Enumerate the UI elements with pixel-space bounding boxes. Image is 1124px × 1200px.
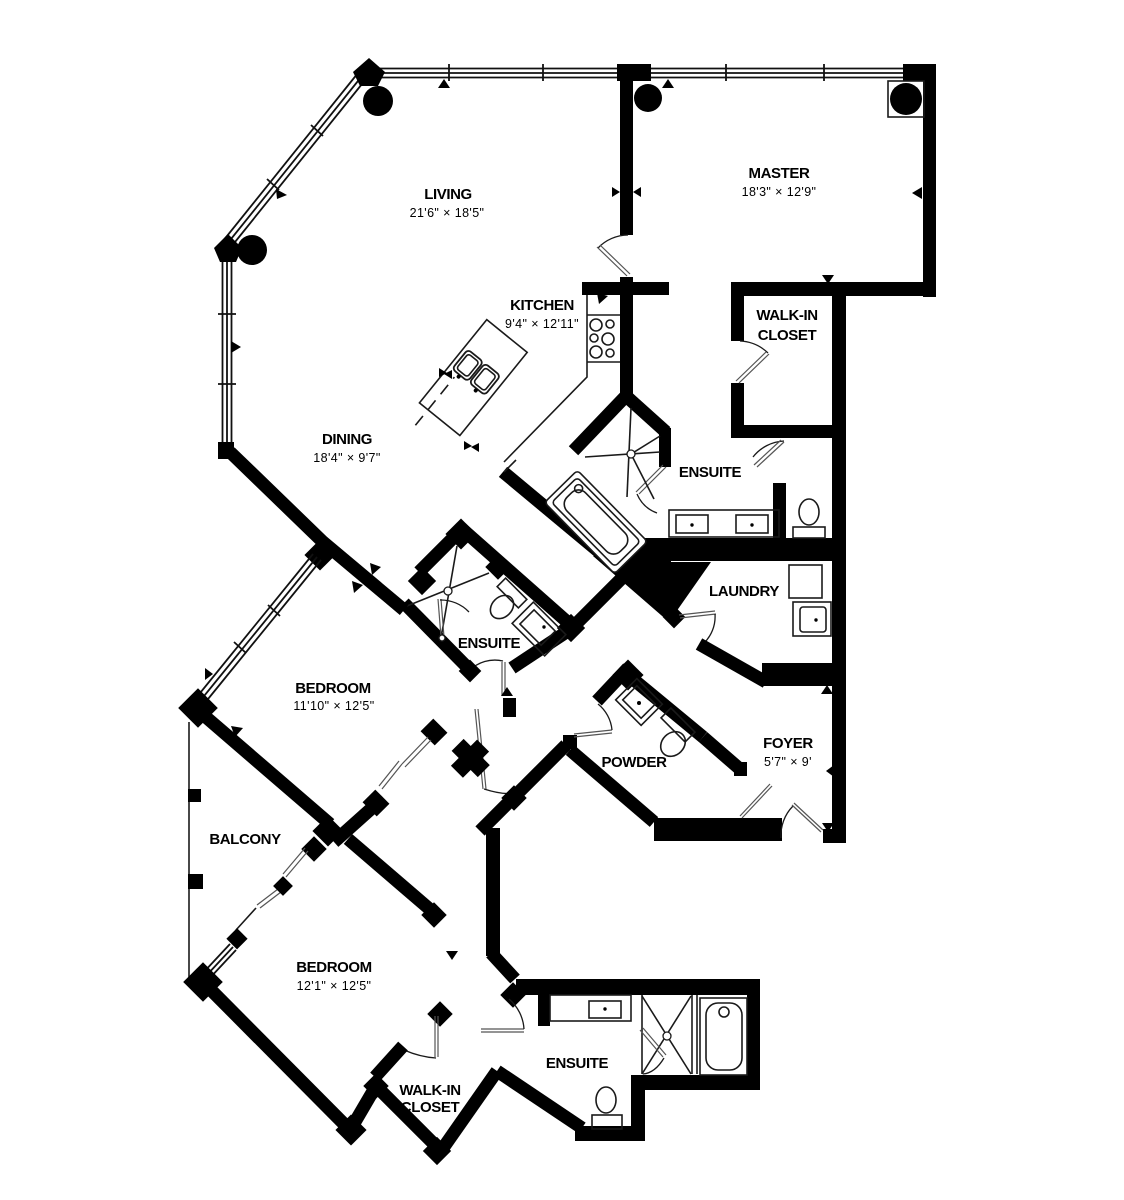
svg-text:LIVING: LIVING [424,186,472,203]
svg-text:5'7" × 9': 5'7" × 9' [764,755,812,769]
svg-text:CLOSET: CLOSET [758,327,817,344]
svg-text:WALK-IN: WALK-IN [756,307,817,324]
svg-text:MASTER: MASTER [749,165,811,182]
svg-text:ENSUITE: ENSUITE [546,1055,609,1072]
svg-text:FOYER: FOYER [763,735,813,752]
svg-text:BEDROOM: BEDROOM [295,680,371,697]
svg-text:KITCHEN: KITCHEN [510,297,574,314]
svg-text:ENSUITE: ENSUITE [679,464,742,481]
svg-text:CLOSET: CLOSET [401,1099,460,1116]
svg-text:18'4" × 9'7": 18'4" × 9'7" [313,451,380,465]
svg-text:18'3" × 12'9": 18'3" × 12'9" [742,185,817,199]
svg-text:9'4" × 12'11": 9'4" × 12'11" [505,317,579,331]
svg-text:POWDER: POWDER [601,754,667,771]
svg-text:BEDROOM: BEDROOM [296,959,372,976]
svg-text:21'6" × 18'5": 21'6" × 18'5" [410,206,485,220]
svg-text:LAUNDRY: LAUNDRY [709,583,779,600]
svg-text:11'10" × 12'5": 11'10" × 12'5" [293,699,374,713]
svg-text:WALK-IN: WALK-IN [399,1082,460,1099]
svg-text:12'1" × 12'5": 12'1" × 12'5" [297,979,372,993]
svg-text:DINING: DINING [322,431,372,448]
svg-text:BALCONY: BALCONY [209,831,281,848]
svg-text:ENSUITE: ENSUITE [458,635,521,652]
